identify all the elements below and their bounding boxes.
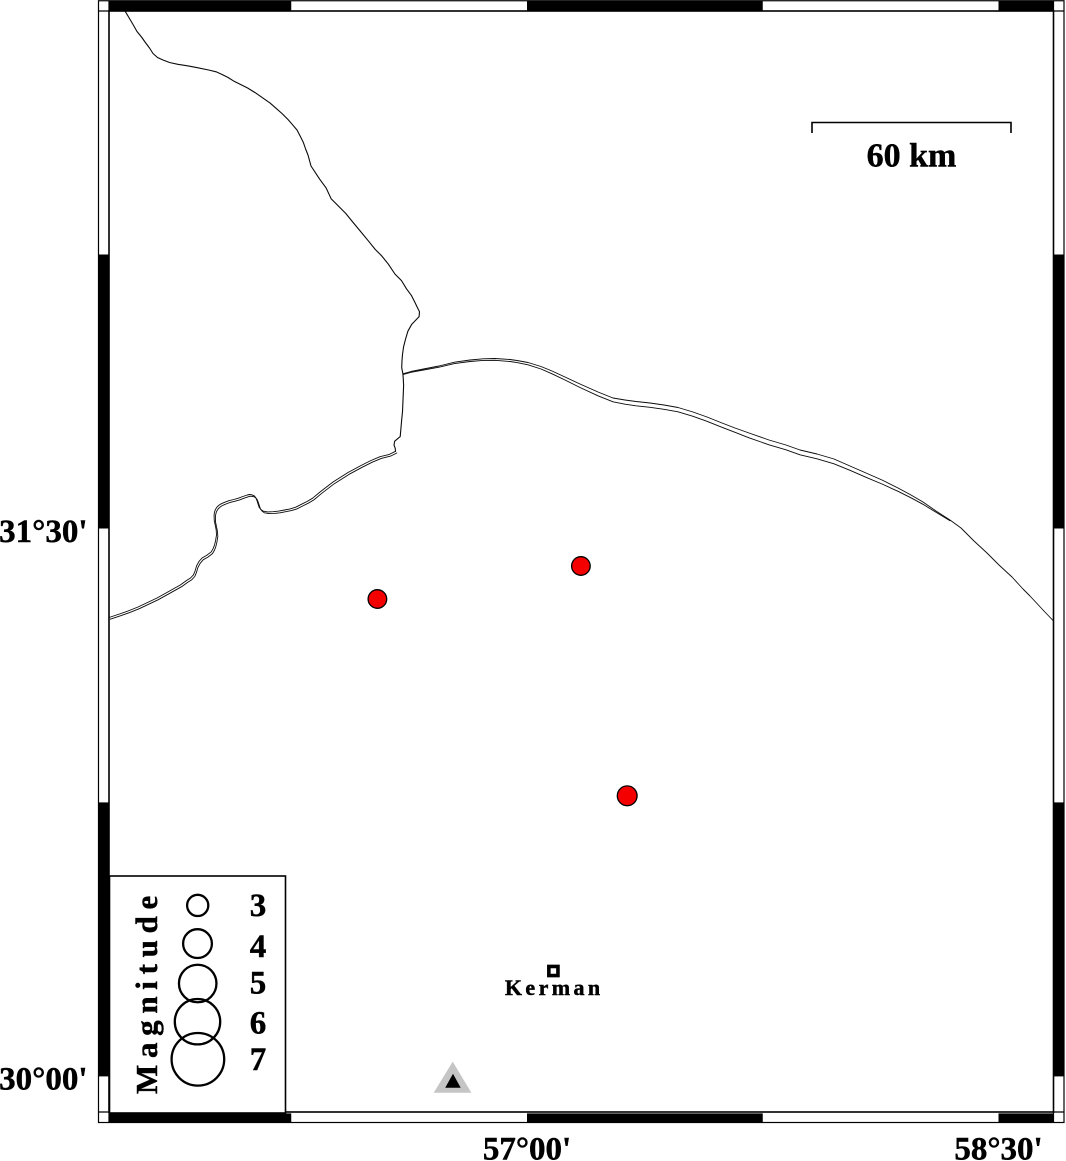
svg-text:30°00': 30°00' — [0, 1062, 88, 1098]
svg-text:6: 6 — [250, 1006, 267, 1042]
svg-text:58°30': 58°30' — [954, 1132, 1042, 1161]
svg-text:7: 7 — [250, 1042, 267, 1078]
svg-text:Kerman: Kerman — [505, 975, 604, 1000]
svg-text:31°30': 31°30' — [0, 514, 88, 550]
svg-text:4: 4 — [250, 929, 267, 965]
svg-text:60 km: 60 km — [867, 138, 957, 175]
svg-text:5: 5 — [250, 966, 267, 1002]
svg-text:3: 3 — [250, 888, 267, 924]
svg-text:57°00': 57°00' — [483, 1132, 571, 1161]
svg-text:Magnitude: Magnitude — [129, 889, 164, 1094]
